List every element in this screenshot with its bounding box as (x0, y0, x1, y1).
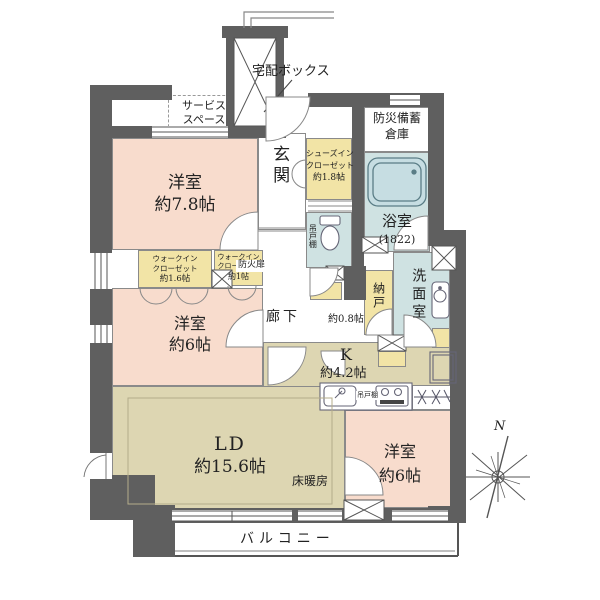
living-size-label: 約15.6帖 (150, 456, 310, 478)
bedroom1-label: 洋室 約7.8帖 (130, 172, 240, 216)
toilet-shelf-label: 吊戸棚 (307, 224, 317, 248)
floorplan: 宅配ボックス サービス スペース 洋室 約7.8帖 玄関 シューズイン クローゼ… (0, 0, 600, 600)
wic1-label: ウォークイン クローゼット 約1.6帖 (139, 254, 211, 286)
hanger-closet (412, 385, 452, 410)
compass-icon (466, 436, 530, 518)
kitchen-name-label: K (340, 345, 352, 366)
wall-disaster-top (362, 93, 436, 107)
kitchen-shelf-label: 吊戸棚 (356, 391, 379, 400)
bedroom3-label: 洋室 約6帖 (350, 440, 450, 488)
bedroom2-label: 洋室 約6帖 (130, 314, 250, 356)
floor-heating-label: 床暖房 (292, 474, 328, 490)
corridor-size-label: 約0.8帖 (328, 313, 364, 326)
delivery-box-label: 宅配ボックス (252, 64, 330, 81)
compass-north-label: N (494, 419, 505, 436)
corridor-label: 廊下 (266, 308, 300, 326)
shaft-brace-icon (234, 38, 276, 126)
wall-center-pillar (344, 266, 366, 300)
service-space-label: サービス スペース (170, 99, 238, 128)
bath-label: 浴室 (1822) (364, 213, 430, 248)
wall-top-left (90, 85, 172, 100)
ps-box-corridor (326, 266, 344, 280)
wall-shaft-bottom (226, 126, 286, 138)
wall-shaft-right (276, 30, 284, 135)
balcony-label: バルコニー (240, 530, 335, 548)
washroom-label: 洗面室 (409, 268, 427, 322)
fire-door-label: 防火扉 (236, 260, 267, 272)
elevator-shaft (234, 38, 276, 126)
corridor-cabinet (310, 282, 342, 300)
washroom-cabinet (432, 328, 450, 348)
wall-right-main (450, 230, 466, 520)
storage-label: 納戸 (370, 282, 386, 310)
entrance-label: 玄関 (268, 145, 290, 187)
living-name-label: LD (160, 432, 300, 457)
kitchen-cabinet (378, 351, 406, 367)
shoes-closet-label: シューズイン クローゼット 約1.8帖 (306, 148, 352, 186)
hall-shelf (308, 201, 352, 211)
wall-right-upper (428, 93, 444, 245)
wall-center-vertical (352, 105, 364, 270)
disaster-storage-label: 防災備蓄 倉庫 (364, 111, 430, 142)
wall-bottom (155, 508, 455, 523)
kitchen-size-label: 約4.2帖 (320, 366, 367, 383)
wall-left (90, 85, 112, 475)
